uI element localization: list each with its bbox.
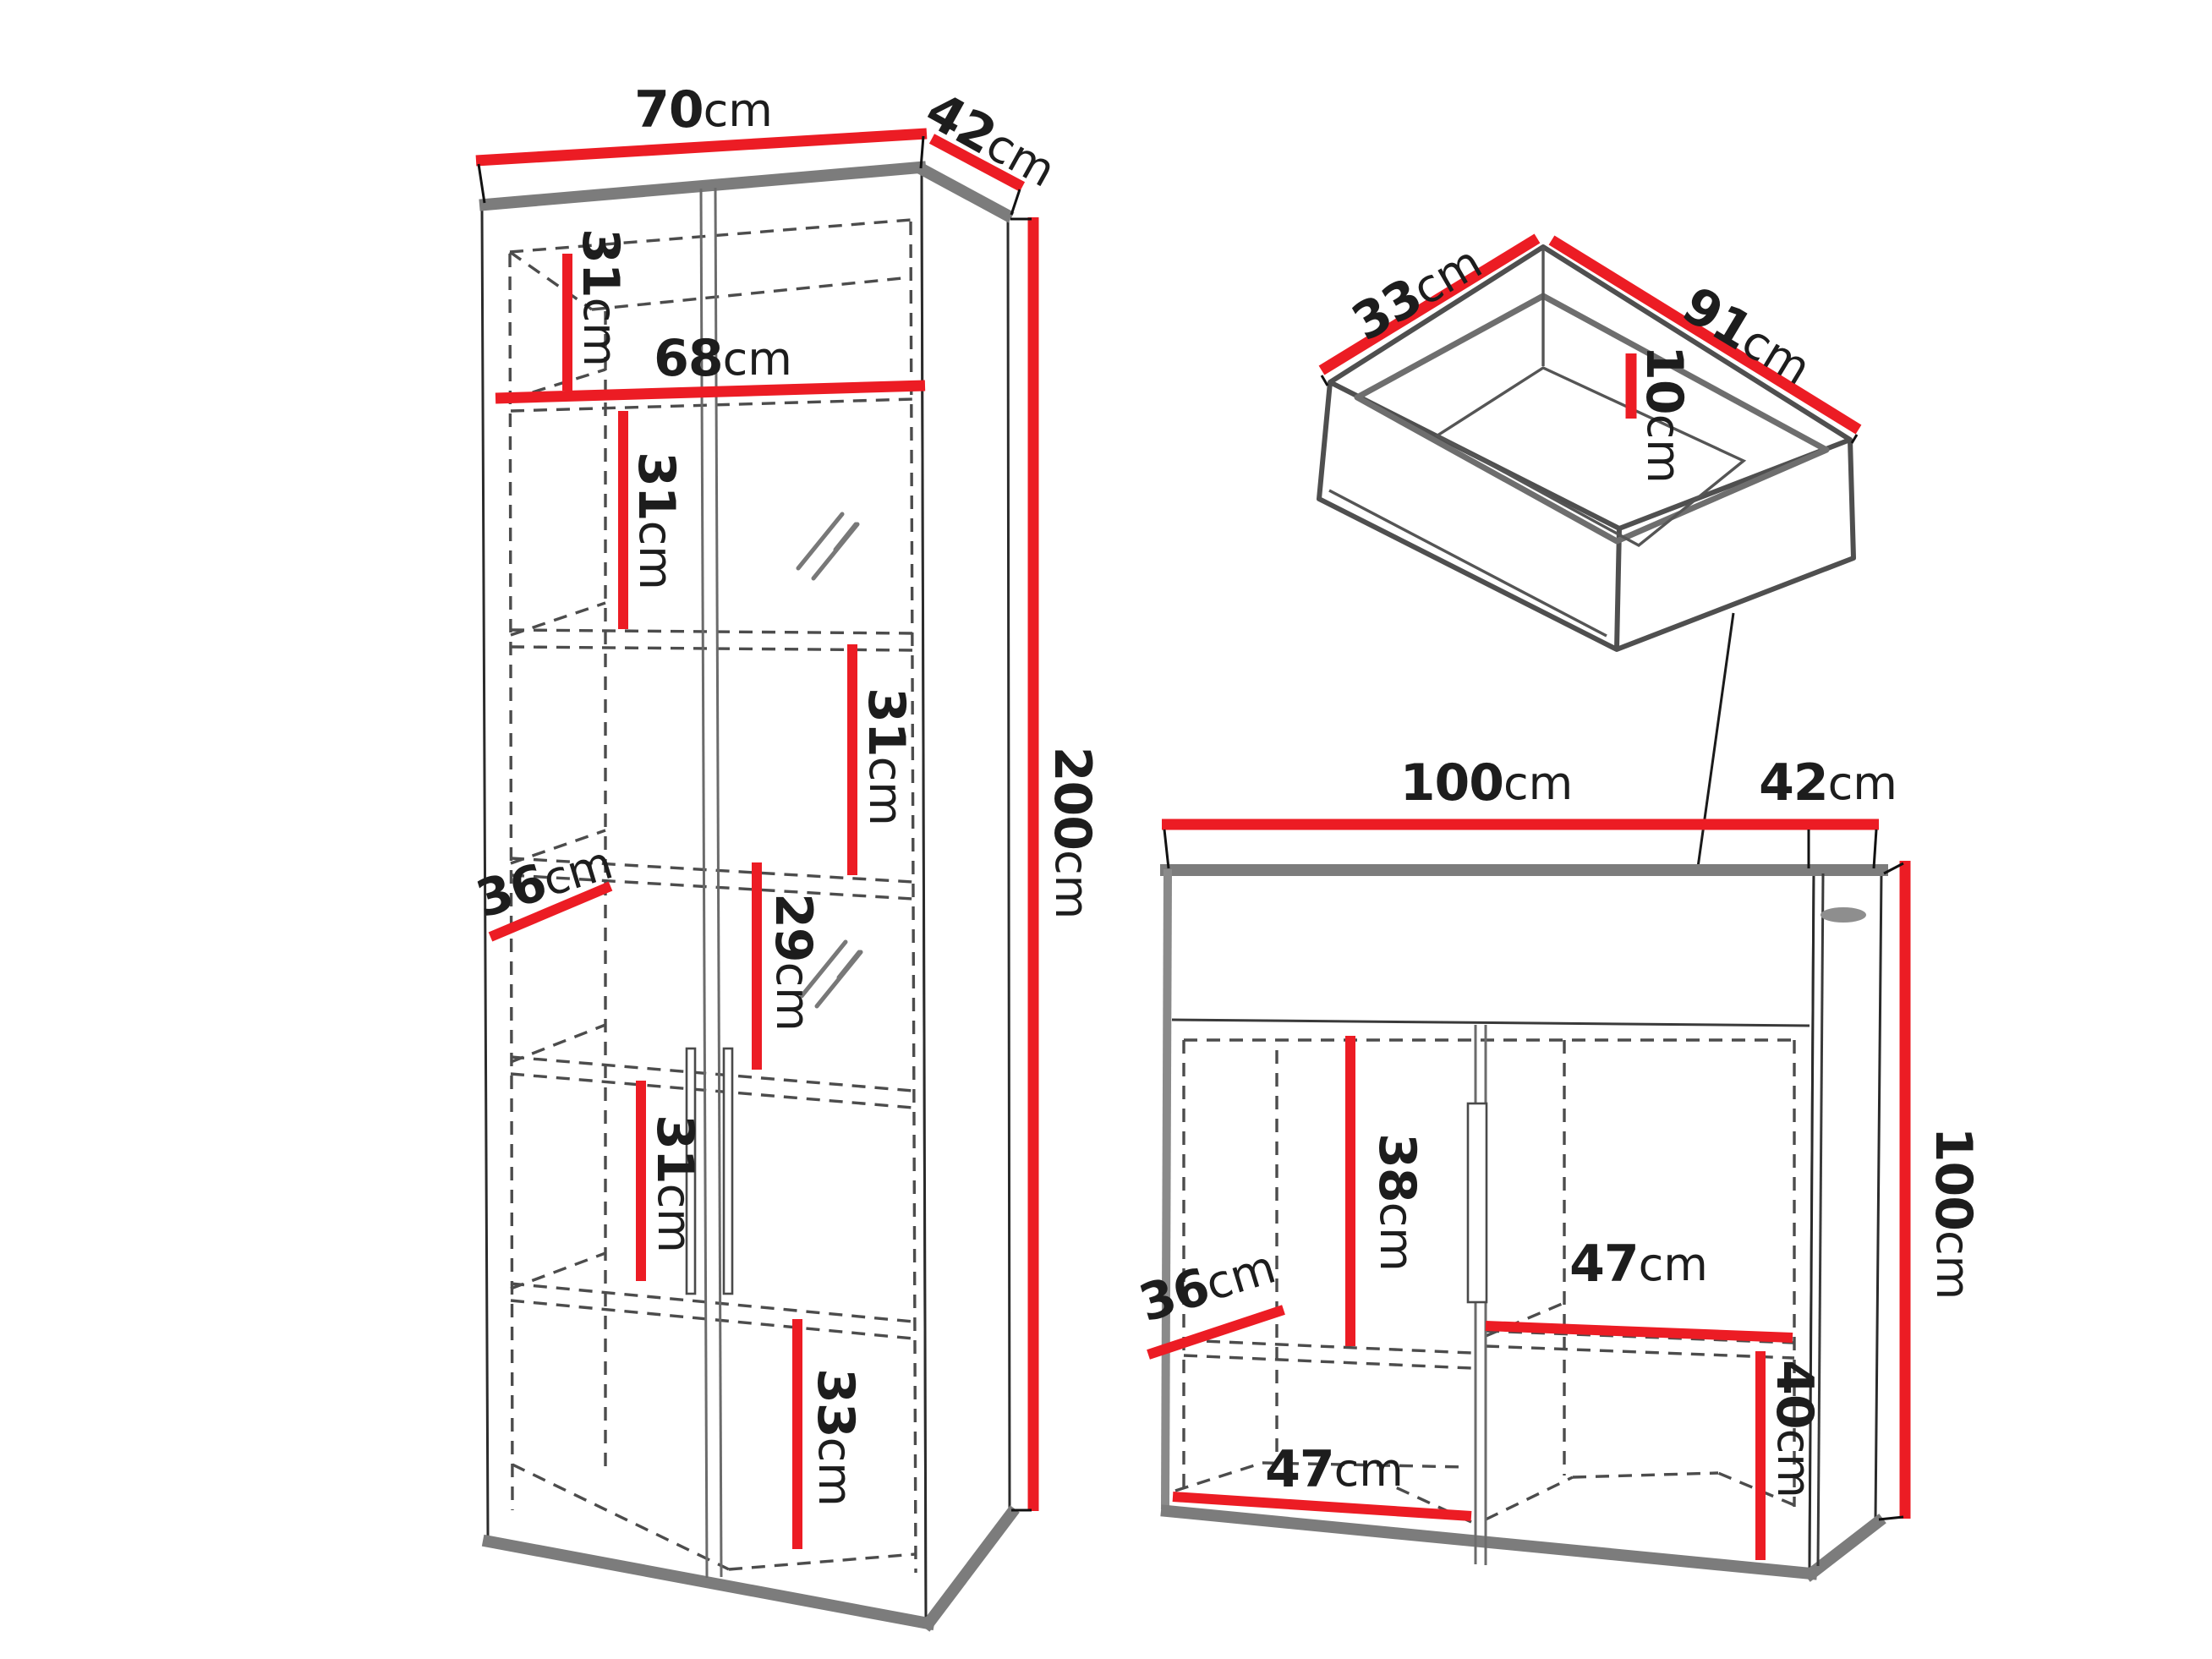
drawer-height-label: 10cm (1634, 345, 1694, 484)
cabinet-front-face (1167, 872, 1814, 1569)
wardrobe-drawing: 70cm 42cm 200cm 31cm 68cm 31cm 31cm 36cm… (469, 80, 1102, 1623)
wardrobe-section1-label: 31cm (571, 228, 630, 367)
wardrobe-section3-label: 31cm (857, 687, 916, 826)
wardrobe-inner-width-label: 68cm (654, 329, 792, 388)
wardrobe-section5-label: 31cm (645, 1114, 704, 1253)
cabinet-shelf-width-label: 47cm (1569, 1235, 1708, 1294)
cabinet-height-label: 100cm (1924, 1127, 1983, 1300)
furniture-dimension-diagram: 70cm 42cm 200cm 31cm 68cm 31cm 31cm 36cm… (0, 0, 2212, 1659)
wardrobe-section4-label: 29cm (764, 893, 823, 1032)
drawer-corner-edge (1617, 528, 1619, 649)
cabinet-depth-label: 42cm (1759, 753, 1897, 813)
cabinet-door-handle (1468, 1103, 1487, 1302)
wardrobe-door-handle-right (724, 1049, 732, 1294)
wardrobe-height-label: 200cm (1043, 747, 1102, 920)
wardrobe-side-face (922, 169, 1010, 1619)
wardrobe-width-label: 70cm (634, 80, 773, 140)
cabinet-bottom-height-label: 40cm (1765, 1360, 1824, 1498)
cabinet-left-edge (1165, 873, 1168, 1505)
drawer-drawing: 33cm 91cm 10cm (1319, 233, 1859, 964)
cabinet-width-label: 100cm (1400, 753, 1574, 813)
cabinet-drawer-handle (1821, 907, 1866, 923)
cabinet-drawing: 100cm 42cm 100cm 38cm 36cm 47cm 40cm 47c… (1132, 753, 1983, 1574)
wardrobe-section2-label: 31cm (627, 452, 686, 590)
cabinet-bottom-width-label: 47cm (1265, 1440, 1404, 1499)
cabinet-inner-height-label: 38cm (1367, 1133, 1426, 1272)
wardrobe-section6-label: 33cm (806, 1368, 865, 1507)
